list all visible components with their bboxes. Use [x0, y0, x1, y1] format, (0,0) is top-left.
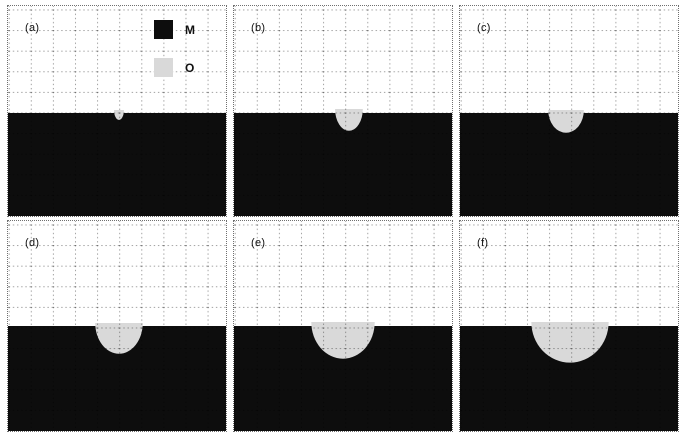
panel-b: (b) — [233, 5, 453, 217]
simulation-figure: (a) M O (b) (c) (d) (e) (f) — [0, 0, 686, 435]
panel-c: (c) — [459, 5, 679, 217]
panel-label-c: (c) — [477, 22, 491, 34]
grid-overlay — [460, 6, 678, 216]
panel-d-canvas — [8, 221, 226, 431]
grid-overlay — [8, 221, 226, 431]
grid-overlay — [460, 221, 678, 431]
panel-a: (a) M O — [7, 5, 227, 217]
grid-overlay — [234, 6, 452, 216]
panel-label-f: (f) — [477, 237, 488, 249]
panel-f-canvas — [460, 221, 678, 431]
panel-b-canvas — [234, 6, 452, 216]
legend: M O — [154, 20, 195, 77]
oxide-swatch — [154, 58, 173, 77]
panel-label-a: (a) — [25, 22, 39, 34]
grid-overlay — [234, 221, 452, 431]
panel-c-canvas — [460, 6, 678, 216]
legend-label-metal: M — [185, 23, 195, 37]
panel-e-canvas — [234, 221, 452, 431]
panel-f: (f) — [459, 220, 679, 432]
metal-swatch — [154, 20, 173, 39]
legend-label-oxide: O — [185, 61, 194, 75]
panel-label-b: (b) — [251, 22, 265, 34]
legend-item-metal: M — [154, 20, 195, 39]
legend-item-oxide: O — [154, 58, 195, 77]
panel-d: (d) — [7, 220, 227, 432]
panel-label-d: (d) — [25, 237, 39, 249]
panel-label-e: (e) — [251, 237, 265, 249]
panel-e: (e) — [233, 220, 453, 432]
